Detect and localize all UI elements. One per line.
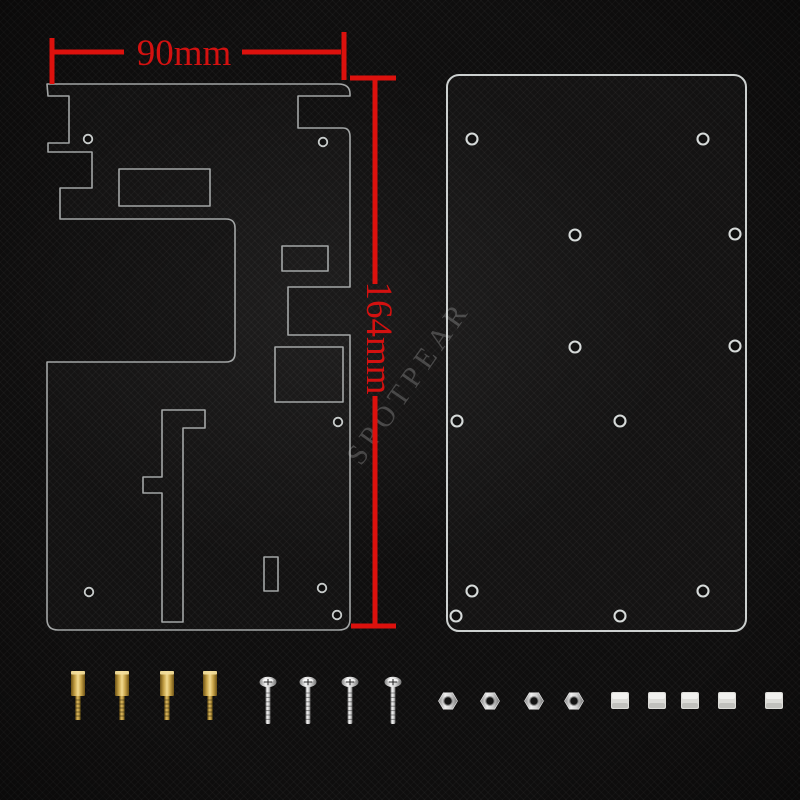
left-plate-hole [333, 611, 342, 620]
screw [385, 677, 402, 724]
spacer [611, 692, 629, 709]
left-plate-outline [47, 84, 350, 630]
hex-nuts-group [439, 693, 584, 709]
photo-svg: SPOTPEAR 90mm 164mm [0, 0, 800, 800]
width-dimension-label: 90mm [137, 33, 232, 74]
hex-nut [439, 693, 458, 709]
right-plate-hole [570, 230, 581, 241]
right-acrylic-plate [447, 75, 746, 631]
screws-group [260, 677, 402, 724]
right-plate-outline [447, 75, 746, 631]
brass-standoff [203, 671, 217, 720]
spacer [718, 692, 736, 709]
screw [342, 677, 359, 724]
brass-standoffs-group [71, 671, 217, 720]
height-dimension-label: 164mm [358, 281, 399, 394]
product-photo-scene: SPOTPEAR 90mm 164mm [0, 0, 800, 800]
right-plate-hole [570, 342, 581, 353]
screw [300, 677, 317, 724]
left-plate-hole [319, 138, 328, 147]
left-plate-hole [84, 135, 93, 144]
right-plate-hole [615, 416, 626, 427]
right-plate-hole [698, 586, 709, 597]
spacers-group [611, 692, 783, 709]
brass-standoff [115, 671, 129, 720]
right-plate-hole [451, 611, 462, 622]
hex-nut [525, 693, 544, 709]
right-plate-hole [698, 134, 709, 145]
right-plate-hole [467, 586, 478, 597]
right-plate-hole [467, 134, 478, 145]
left-acrylic-plate [47, 84, 350, 630]
right-plate-hole [615, 611, 626, 622]
spacer [765, 692, 783, 709]
right-plate-hole [452, 416, 463, 427]
brass-standoff [160, 671, 174, 720]
hex-nut [481, 693, 500, 709]
spacer [648, 692, 666, 709]
spacer [681, 692, 699, 709]
brass-standoff [71, 671, 85, 720]
right-plate-hole [730, 229, 741, 240]
left-plate-hole [334, 418, 343, 427]
left-plate-hole [318, 584, 327, 593]
right-plate-hole [730, 341, 741, 352]
screw [260, 677, 277, 724]
hex-nut [565, 693, 584, 709]
left-plate-hole [85, 588, 94, 597]
